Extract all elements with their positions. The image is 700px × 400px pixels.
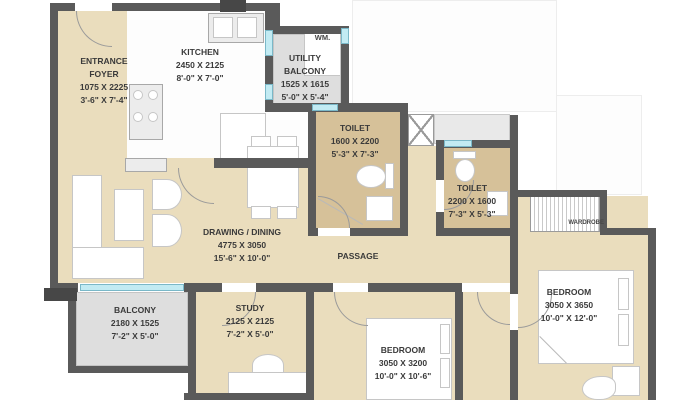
room-label-balcony: BALCONY 2180 X 1525 7'-2" X 5'-0" (90, 304, 180, 343)
sink-basin (237, 17, 257, 38)
wall-segment (600, 190, 607, 235)
dining-chair (277, 206, 297, 219)
sofa-l-section (72, 247, 144, 279)
kitchen-counter (125, 158, 167, 172)
adjacent-unit-outline (556, 95, 642, 195)
wc-bowl (455, 159, 475, 182)
bedside-table (612, 366, 640, 396)
armchair (152, 214, 182, 247)
window (444, 140, 472, 147)
pillow (618, 278, 629, 310)
window (80, 284, 184, 291)
wall-column (44, 288, 77, 301)
room-label-passage: PASSAGE (320, 250, 396, 263)
room-label-bedroom-1: BEDROOM 3050 X 3200 10'-0" X 10'-6" (358, 344, 448, 383)
toilet-lobby-floor (408, 146, 436, 236)
wall-segment (184, 393, 312, 400)
wall-segment (50, 3, 58, 291)
wall-segment (455, 292, 463, 400)
floor-plan: WARDROBE WM. (0, 0, 700, 400)
wc-tank (453, 151, 476, 159)
wc-bowl (356, 165, 386, 188)
wall-segment (68, 366, 196, 373)
room-label-study: STUDY 2125 X 2125 7'-2" X 5'-0" (210, 302, 290, 341)
wardrobe-hatch (530, 196, 600, 232)
wall-segment (510, 115, 518, 294)
wall-segment (256, 283, 333, 292)
wall-segment (648, 228, 656, 400)
washing-machine-label: WM. (304, 33, 341, 42)
adjacent-unit-outline (352, 0, 557, 112)
wardrobe-label: WARDROBE (548, 220, 604, 226)
room-label-kitchen: KITCHEN 2450 X 2125 8'-0" X 7'-0" (160, 46, 240, 85)
wall-segment (188, 283, 196, 393)
room-label-bedroom-2: BEDROOM 3050 X 3650 10'-0" X 12'-0" (524, 286, 614, 325)
wall-segment (196, 283, 222, 292)
hob-burner (148, 112, 158, 122)
wall-segment (68, 291, 76, 373)
wall-segment (112, 3, 224, 11)
hob-burner (133, 112, 143, 122)
pillow (618, 314, 629, 346)
wall-segment (436, 228, 518, 236)
wall-segment (214, 158, 308, 168)
wall-segment (511, 190, 607, 197)
room-label-entrance-foyer: ENTRANCE FOYER 1075 X 2225 3'-6" X 7'-4" (64, 55, 144, 107)
washbasin (366, 196, 393, 221)
dining-table (247, 146, 299, 208)
wall-segment (272, 3, 280, 34)
window (312, 104, 338, 111)
coffee-table (114, 189, 144, 241)
wc-tank (385, 163, 394, 189)
service-shaft (408, 114, 434, 146)
bedroom-chair (582, 376, 616, 400)
wall-column (220, 0, 246, 12)
dining-chair (251, 206, 271, 219)
room-label-toilet-2: TOILET 2200 X 1600 7'-3" X 5'-3" (434, 182, 510, 221)
room-label-utility-balcony: UTILITY BALCONY 1525 X 1615 5'-0" X 5'-4… (268, 52, 342, 104)
wall-segment (436, 140, 444, 180)
room-label-drawing-dining: DRAWING / DINING 4775 X 3050 15'-6" X 10… (182, 226, 302, 265)
sink-basin (213, 17, 233, 38)
wall-segment (306, 283, 314, 400)
wall-segment (510, 330, 518, 400)
wall-segment (400, 111, 408, 236)
room-label-toilet-1: TOILET 1600 X 2200 5'-3" X 7'-3" (312, 122, 398, 161)
window (341, 28, 349, 44)
armchair (152, 179, 182, 210)
wall-segment (368, 283, 462, 292)
hob-burner (148, 90, 158, 100)
